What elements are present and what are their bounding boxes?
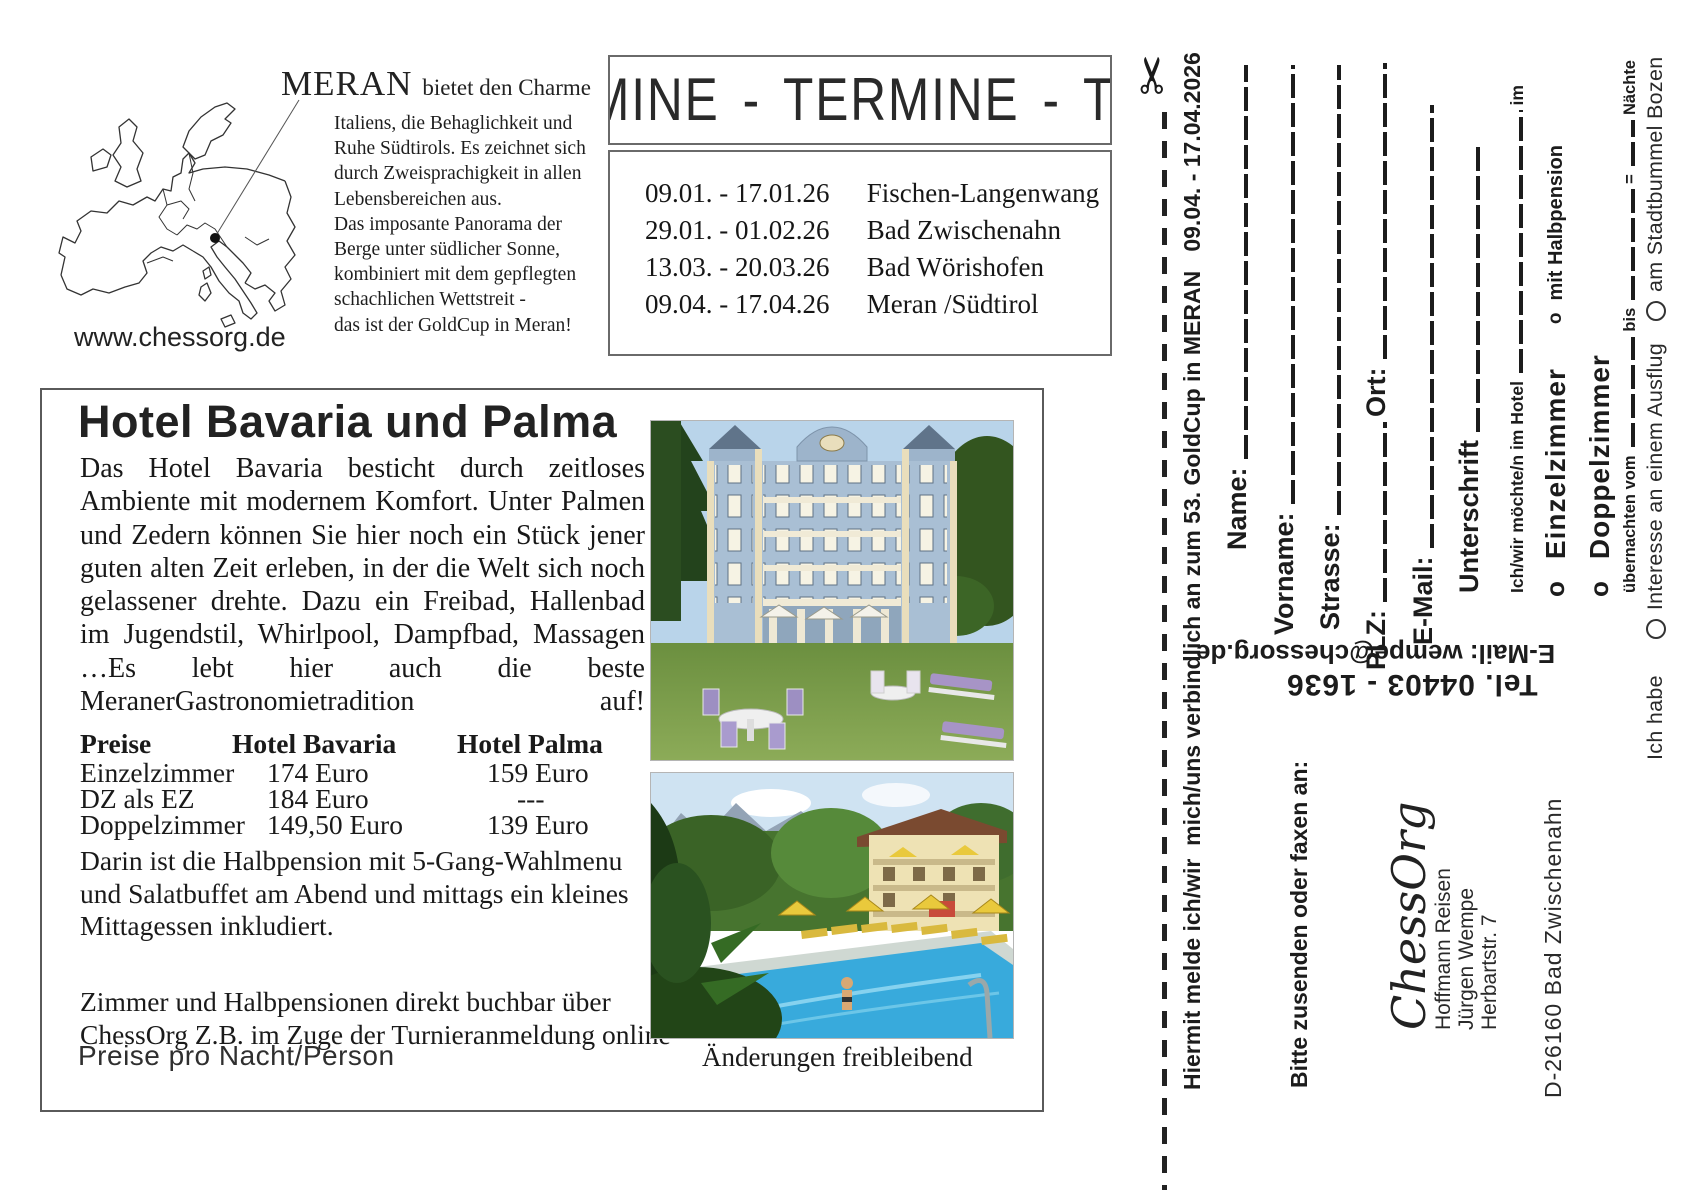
option-bullet: o <box>1584 581 1616 597</box>
price-header-preise: Preise <box>80 728 151 760</box>
price-palma: 139 Euro <box>487 809 589 841</box>
write-line <box>1383 422 1387 602</box>
hotel-bavaria-photo <box>650 420 1014 761</box>
field-strasse: Strasse: <box>1315 60 1346 630</box>
event-location: Fischen-Langenwang <box>867 178 1099 208</box>
circle-option-icon <box>1646 301 1666 321</box>
field-strasse-label: Strasse: <box>1315 523 1346 630</box>
spacer <box>1643 639 1668 675</box>
interest-option-stadtbummel: am Stadtbummel Bozen <box>1643 57 1668 292</box>
termine-banner: MINE - TERMINE - TERMINE <box>608 55 1112 145</box>
room-type: Doppelzimmer <box>80 809 245 841</box>
address-block: ChessOrg Hoffmann Reisen Jürgen Wempe He… <box>1386 728 1520 1102</box>
interest-option-ausflug: Interesse an einem Ausflug <box>1643 343 1668 610</box>
write-line <box>1631 189 1635 300</box>
write-line <box>1337 65 1341 515</box>
hotel-line-suffix: im <box>1507 85 1528 105</box>
termine-row: 09.01. - 17.01.26 Fischen-Langenwang <box>645 178 1099 209</box>
contact-tel: Tel. 04403 - 1636 <box>1286 667 1538 701</box>
flyer-page: MERAN bietet den Charme Italiens, die Be… <box>0 0 1683 1190</box>
field-name: Name: <box>1222 60 1253 550</box>
hotel-description: Das Hotel Bavaria besticht durch zeitlos… <box>80 452 645 718</box>
price-header-bavaria: Hotel Bavaria <box>232 728 396 760</box>
termine-row: 29.01. - 01.02.26 Bad Zwischenahn <box>645 215 1061 246</box>
meran-title-suffix: bietet den Charme <box>422 75 591 101</box>
write-line <box>1291 65 1295 504</box>
nights-part4: Nächte <box>1621 60 1640 115</box>
termine-dates-box: 09.01. - 17.01.26 Fischen-Langenwang 29.… <box>608 150 1112 356</box>
termine-row: 13.03. - 20.03.26 Bad Wörishofen <box>645 252 1044 283</box>
field-vorname-label: Vorname: <box>1269 512 1300 635</box>
send-to-label: Bitte zusenden oder faxen an: <box>1286 744 1313 1088</box>
room-option-doppelzimmer: o Doppelzimmer <box>1584 354 1616 597</box>
halbpension-note: Darin ist die Halbpension mit 5-Gang-Wah… <box>80 845 629 943</box>
event-dates: 09.04. - 17.04.26 <box>645 289 860 320</box>
hotel-choice-line: Ich/wir möchte/n im Hotel im <box>1507 85 1528 593</box>
circle-option-icon <box>1646 619 1666 639</box>
field-unterschrift-label: Unterschrift <box>1454 440 1485 593</box>
field-name-label: Name: <box>1222 467 1253 550</box>
photo-caption: Änderungen freibleibend <box>702 1042 973 1073</box>
write-line <box>1519 110 1523 373</box>
meran-description: Italiens, die Behaglichkeit und Ruhe Süd… <box>334 111 634 338</box>
address-lines: Hoffmann Reisen Jürgen Wempe Herbartstr.… <box>1432 728 1501 1030</box>
hotel-pool-photo <box>650 772 1014 1039</box>
contact-email: E-Mail: wempe@chessorg.de <box>1196 638 1555 669</box>
meran-location-dot <box>210 233 220 243</box>
nights-part1: übernachten vom <box>1621 455 1640 593</box>
field-vorname: Vorname: <box>1269 60 1300 635</box>
field-email: E-Mail: <box>1408 100 1439 645</box>
halbpension-label: mit Halbpension <box>1545 145 1568 301</box>
price-header-palma: Hotel Palma <box>457 728 603 760</box>
form-header: Hiermit melde ich/wir mich/uns verbindli… <box>1179 52 1206 1090</box>
interest-line: Ich habe Interesse an einem Ausflug am S… <box>1643 57 1668 761</box>
write-line <box>1631 120 1635 166</box>
write-line <box>1631 337 1635 448</box>
website-url: www.chessorg.de <box>74 322 286 353</box>
field-plz-ort: PLZ: Ort: <box>1361 58 1392 670</box>
event-location: Meran /Südtirol <box>867 289 1039 319</box>
doppelzimmer-label: Doppelzimmer <box>1584 354 1616 559</box>
europe-map <box>55 97 323 340</box>
event-dates: 13.03. - 20.03.26 <box>645 252 860 283</box>
field-ort-label: Ort: <box>1361 368 1392 418</box>
option-bullet: o <box>1545 313 1567 325</box>
chessorg-logo: ChessOrg <box>1386 728 1432 1030</box>
spacer <box>1643 321 1668 343</box>
write-line <box>1476 145 1480 432</box>
field-unterschrift: Unterschrift <box>1454 140 1485 593</box>
einzelzimmer-label: Einzelzimmer <box>1540 368 1572 559</box>
nights-part2: bis <box>1621 308 1640 332</box>
option-bullet: o <box>1540 581 1572 597</box>
field-email-label: E-Mail: <box>1408 556 1439 645</box>
price-per-night-note: Preise pro Nacht/Person <box>78 1040 395 1072</box>
nights-line: übernachten vom bis = Nächte <box>1621 60 1640 593</box>
hotel-title: Hotel Bavaria und Palma <box>78 396 617 448</box>
meran-title: MERAN <box>281 64 412 104</box>
interest-prefix: Ich habe <box>1643 675 1668 760</box>
event-dates: 09.01. - 17.01.26 <box>645 178 860 209</box>
event-dates: 29.01. - 01.02.26 <box>645 215 860 246</box>
write-line <box>1244 65 1248 459</box>
write-line <box>1430 105 1434 548</box>
event-location: Bad Wörishofen <box>867 252 1044 282</box>
termine-row: 09.04. - 17.04.26 Meran /Südtirol <box>645 289 1038 320</box>
hotel-line-prefix: Ich/wir möchte/n im Hotel <box>1507 381 1528 593</box>
meran-heading: MERAN bietet den Charme <box>281 64 591 104</box>
address-city: D-26160 Bad Zwischenahn <box>1540 786 1567 1098</box>
termine-banner-text: MINE - TERMINE - TERMINE <box>608 65 1112 134</box>
room-option-einzelzimmer: o Einzelzimmer o mit Halbpension <box>1540 145 1572 597</box>
price-bavaria: 149,50 Euro <box>267 809 403 841</box>
write-line <box>1383 63 1387 360</box>
event-location: Bad Zwischenahn <box>867 215 1061 245</box>
hotel-info-box: Hotel Bavaria und Palma Das Hotel Bavari… <box>40 388 1044 1112</box>
nights-part3: = <box>1621 174 1640 184</box>
